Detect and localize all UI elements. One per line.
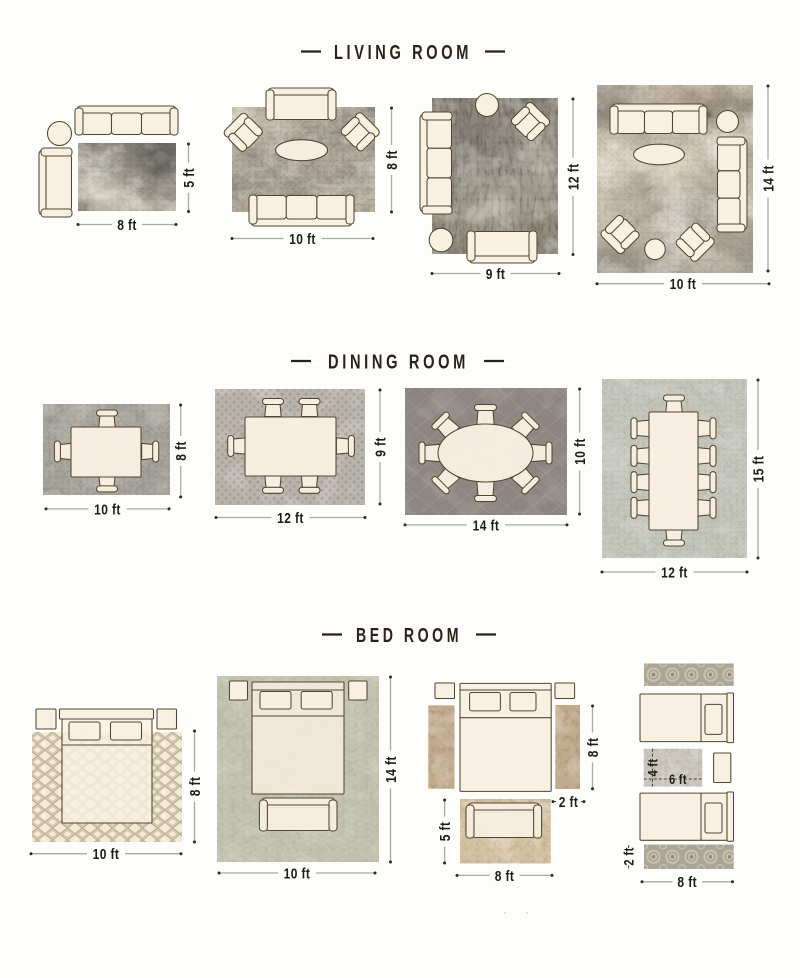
svg-text:6 ft: 6 ft [669, 772, 687, 787]
svg-text:8 ft: 8 ft [173, 441, 190, 461]
svg-text:9 ft: 9 ft [372, 437, 389, 457]
svg-text:14 ft: 14 ft [760, 165, 777, 192]
svg-text:4 ft: 4 ft [645, 759, 660, 777]
svg-text:12 ft: 12 ft [565, 163, 582, 190]
svg-text:5 ft: 5 ft [181, 168, 198, 188]
svg-text:10 ft: 10 ft [93, 846, 120, 863]
svg-text:10 ft: 10 ft [284, 865, 311, 882]
svg-text:2 ft: 2 ft [621, 847, 636, 866]
svg-text:15 ft: 15 ft [750, 456, 767, 483]
svg-text:DINING ROOM: DINING ROOM [328, 351, 469, 373]
svg-text:5 ft: 5 ft [437, 822, 454, 842]
svg-text:9 ft: 9 ft [486, 266, 506, 283]
svg-text:10 ft: 10 ft [94, 501, 121, 518]
svg-text:12 ft: 12 ft [277, 510, 304, 527]
svg-text:8 ft: 8 ft [117, 217, 137, 234]
svg-text:8 ft: 8 ft [187, 777, 204, 797]
svg-text:8 ft: 8 ft [384, 150, 401, 170]
svg-text:10 ft: 10 ft [670, 276, 697, 293]
svg-text:10 ft: 10 ft [289, 231, 316, 248]
svg-text:8 ft: 8 ft [495, 868, 515, 885]
svg-text:LIVING ROOM: LIVING ROOM [334, 42, 472, 64]
svg-text:2 ft: 2 ft [559, 794, 579, 811]
svg-text:BED ROOM: BED ROOM [356, 625, 462, 647]
svg-text:14 ft: 14 ft [473, 517, 500, 534]
svg-text:14 ft: 14 ft [383, 756, 400, 783]
svg-text:12 ft: 12 ft [661, 564, 688, 581]
svg-text:8 ft: 8 ft [677, 874, 697, 891]
svg-text:8 ft: 8 ft [585, 738, 602, 758]
svg-text:10 ft: 10 ft [572, 438, 589, 465]
